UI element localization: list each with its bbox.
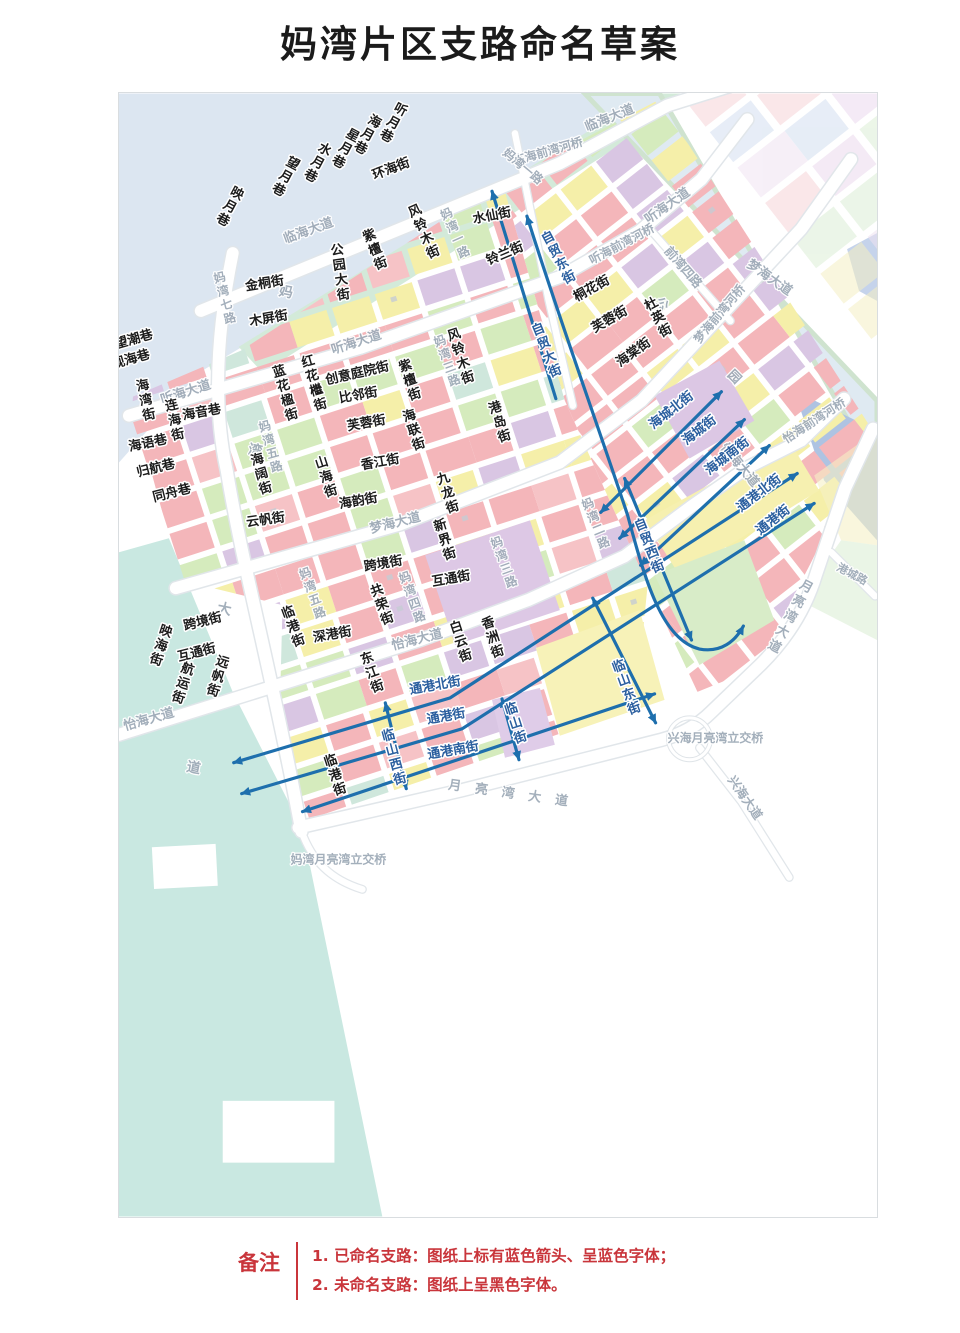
legend-note-unnamed: 2. 未命名支路：图纸上呈黑色字体。 — [312, 1271, 675, 1300]
unnamed-street-label: 云帆街 — [245, 509, 286, 530]
legend-note-named: 1. 已命名支路：图纸上标有蓝色箭头、呈蓝色字体； — [312, 1242, 675, 1271]
page-title: 妈湾片区支路命名草案 — [0, 14, 960, 68]
legend: 备注 1. 已命名支路：图纸上标有蓝色箭头、呈蓝色字体； 2. 未命名支路：图纸… — [238, 1242, 675, 1300]
legend-label: 备注 — [238, 1242, 280, 1300]
legend-notes: 1. 已命名支路：图纸上标有蓝色箭头、呈蓝色字体； 2. 未命名支路：图纸上呈黑… — [312, 1242, 675, 1300]
map-canvas: 临海大道临海大道临海前湾河桥听海大道听海大道听海大道听海前湾河桥前湾四路梦海大道… — [119, 93, 877, 1217]
pier — [223, 1101, 335, 1163]
pier — [152, 844, 218, 889]
road-label: 兴海月亮湾立交桥 — [668, 730, 764, 745]
map-frame: 临海大道临海大道临海前湾河桥听海大道听海大道听海大道听海前湾河桥前湾四路梦海大道… — [118, 92, 878, 1218]
legend-divider — [296, 1242, 298, 1300]
road-label: 妈湾月亮湾立交桥 — [291, 851, 387, 866]
